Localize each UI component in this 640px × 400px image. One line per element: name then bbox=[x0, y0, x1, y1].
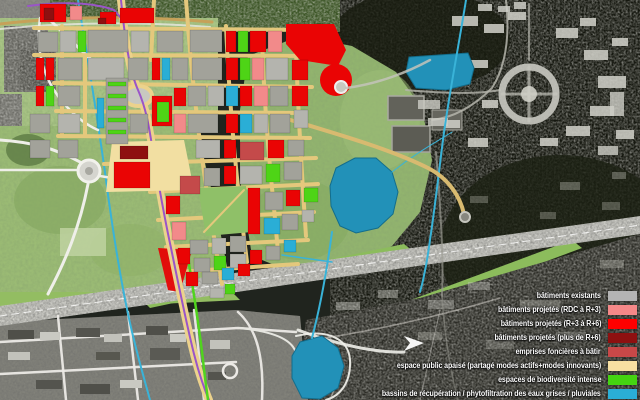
building-block-ex bbox=[270, 114, 290, 133]
building bbox=[482, 100, 498, 108]
building bbox=[612, 38, 628, 46]
building-block-rd bbox=[226, 31, 236, 52]
building-block-cy bbox=[240, 114, 252, 133]
legend-label: bâtiments projetés (RDC à R+3) bbox=[498, 305, 601, 315]
building-block-rd bbox=[114, 162, 150, 188]
building-block-ex bbox=[190, 30, 222, 52]
building-block-ex bbox=[188, 114, 218, 133]
street bbox=[56, 111, 306, 113]
building bbox=[610, 92, 624, 116]
building-block-ex bbox=[190, 240, 208, 254]
building-block-rd bbox=[120, 8, 154, 23]
building-block-rd bbox=[238, 264, 250, 276]
building-block-gr bbox=[108, 94, 126, 98]
building-block-rd bbox=[240, 86, 252, 106]
building-block-rd bbox=[224, 166, 236, 184]
building bbox=[560, 182, 580, 190]
building-block-gr bbox=[78, 31, 86, 52]
roundabout-northeast bbox=[335, 81, 347, 93]
sports-fields bbox=[392, 126, 430, 152]
building bbox=[600, 260, 624, 268]
legend-swatch bbox=[608, 375, 637, 385]
legend-item-5: espace public apaisé (partagé modes acti… bbox=[369, 361, 637, 371]
building-block-cy bbox=[97, 98, 104, 128]
building-block-ex2 bbox=[240, 166, 262, 184]
building-block-ex2 bbox=[302, 210, 314, 222]
building bbox=[612, 172, 626, 179]
building-block-ex2 bbox=[210, 288, 224, 298]
building-block-ex bbox=[202, 272, 218, 284]
building-block-ex bbox=[265, 192, 283, 210]
building bbox=[540, 212, 556, 219]
building-block-sa bbox=[70, 6, 82, 20]
legend-swatch bbox=[608, 319, 637, 329]
building-block-rd bbox=[248, 188, 260, 234]
map-legend: bâtiments existantsbâtiments projetés (R… bbox=[352, 291, 637, 400]
building-block-ex bbox=[88, 30, 128, 52]
building bbox=[8, 352, 30, 360]
roundabout-west-island bbox=[85, 167, 93, 175]
legend-item-6: espaces de biodiversité intense bbox=[484, 375, 637, 385]
legend-item-1: bâtiments projetés (RDC à R+3) bbox=[484, 305, 637, 315]
building-block-ex bbox=[38, 32, 58, 52]
building-block-cy bbox=[162, 58, 170, 80]
building-block-sa bbox=[252, 58, 264, 80]
building bbox=[146, 326, 168, 335]
building-block-rd bbox=[226, 114, 238, 133]
building bbox=[470, 196, 488, 203]
building-block-rd bbox=[166, 196, 180, 214]
building-block-ex2 bbox=[131, 31, 149, 52]
building-block-sa bbox=[174, 114, 186, 133]
building bbox=[80, 384, 110, 394]
building-block-ex2 bbox=[294, 110, 308, 128]
building bbox=[556, 28, 578, 38]
building-block-ex bbox=[58, 86, 80, 106]
building-block-ex bbox=[30, 114, 50, 133]
building-block-rd bbox=[46, 58, 54, 80]
building-block-cy bbox=[264, 218, 280, 234]
building-block-gr bbox=[46, 86, 54, 106]
building-block-ex2 bbox=[212, 238, 226, 254]
building-block-ex2 bbox=[208, 86, 224, 106]
legend-item-0: bâtiments existants bbox=[528, 291, 637, 301]
building-block-ex bbox=[204, 168, 220, 186]
building-block-ex bbox=[192, 58, 222, 80]
building-block-ex bbox=[288, 140, 304, 156]
building bbox=[36, 380, 62, 389]
legend-label: bâtiments projetés (plus de R+6) bbox=[495, 333, 601, 343]
building-block-ex bbox=[30, 140, 50, 158]
building-block-ex bbox=[58, 58, 82, 80]
building bbox=[452, 16, 478, 26]
building-block-cy bbox=[226, 86, 238, 106]
legend-item-3: bâtiments projetés (plus de R+6) bbox=[480, 333, 637, 343]
building-block-gr bbox=[240, 58, 250, 80]
building-block-gr bbox=[238, 31, 248, 52]
building-block-ex bbox=[270, 86, 288, 106]
building-block-ex bbox=[128, 58, 148, 80]
building-block-ex2 bbox=[58, 114, 80, 133]
building bbox=[418, 100, 440, 109]
legend-label: bâtiments existants bbox=[537, 291, 601, 301]
building bbox=[40, 332, 60, 340]
building-block-cy bbox=[222, 268, 234, 280]
building-block-rd bbox=[36, 86, 44, 106]
building-block-rd bbox=[286, 190, 300, 206]
building-block-gr bbox=[108, 118, 126, 122]
building-block-ex bbox=[58, 140, 78, 158]
legend-swatch bbox=[608, 389, 637, 399]
building-block-sa bbox=[268, 31, 282, 52]
legend-item-2: bâtiments projetés (R+3 à R+6) bbox=[487, 319, 637, 329]
building-block-rd bbox=[178, 248, 190, 264]
building-block-gr bbox=[266, 164, 280, 182]
building bbox=[478, 4, 492, 11]
building bbox=[468, 138, 488, 147]
building-block-rd bbox=[250, 31, 266, 52]
building bbox=[8, 330, 34, 339]
building-block-sa bbox=[172, 222, 186, 240]
building-block-ex bbox=[230, 236, 246, 252]
building-block-sa bbox=[254, 86, 268, 106]
legend-swatch bbox=[608, 305, 637, 315]
legend-item-7: bassins de récupération / phytofiltratio… bbox=[352, 389, 637, 399]
building-block-rd bbox=[174, 88, 186, 106]
building-block-gr bbox=[108, 130, 126, 134]
building bbox=[540, 138, 558, 146]
building-block-rd bbox=[224, 140, 236, 158]
lake-northeast bbox=[406, 53, 474, 90]
building bbox=[584, 50, 608, 60]
building-block-gr bbox=[108, 106, 126, 110]
building-block-ex bbox=[157, 31, 183, 52]
building-block-dr bbox=[120, 146, 148, 159]
building-block-rd bbox=[152, 58, 160, 80]
legend-swatch bbox=[608, 333, 637, 343]
building-block-ex2 bbox=[254, 114, 268, 133]
building-block-ex2 bbox=[88, 58, 124, 80]
building-block-ex bbox=[130, 114, 148, 133]
legend-item-4: emprises foncières à bâtir bbox=[504, 347, 637, 357]
building bbox=[602, 202, 620, 210]
building-block-ex bbox=[284, 162, 302, 180]
building bbox=[598, 146, 618, 155]
building bbox=[514, 2, 526, 9]
building-block-rd bbox=[292, 86, 308, 106]
building-block-gr bbox=[108, 82, 126, 86]
building bbox=[566, 126, 590, 136]
building bbox=[170, 334, 186, 342]
building-block-br bbox=[180, 176, 200, 194]
legend-swatch bbox=[608, 291, 637, 301]
building bbox=[150, 348, 180, 360]
building-block-ex2 bbox=[196, 140, 220, 158]
resort-center bbox=[521, 86, 537, 102]
building-block-br bbox=[240, 142, 264, 160]
legend-label: espace public apaisé (partagé modes acti… bbox=[397, 361, 601, 371]
legend-swatch bbox=[608, 347, 637, 357]
legend-label: bâtiments projetés (R+3 à R+6) bbox=[500, 319, 601, 329]
legend-label: emprises foncières à bâtir bbox=[516, 347, 601, 357]
building bbox=[616, 130, 634, 139]
street bbox=[34, 55, 336, 56]
building-block-rd bbox=[36, 58, 44, 80]
building bbox=[468, 282, 490, 290]
building-block-rd bbox=[268, 140, 284, 158]
building-block-rd bbox=[226, 58, 238, 80]
building bbox=[498, 6, 510, 12]
building bbox=[580, 18, 596, 26]
building-block-ex bbox=[172, 58, 188, 80]
building bbox=[76, 328, 100, 337]
street bbox=[58, 136, 310, 138]
building-block-rd bbox=[186, 272, 198, 286]
street bbox=[34, 28, 322, 30]
building-block-gr bbox=[225, 284, 235, 294]
building-block-gr bbox=[157, 102, 169, 122]
building-block-rd bbox=[292, 60, 308, 80]
building-block-rd bbox=[250, 250, 262, 264]
building bbox=[508, 12, 526, 20]
building bbox=[120, 380, 142, 388]
building-block-gr bbox=[304, 188, 318, 202]
masterplan-map-image: bâtiments existantsbâtiments projetés (R… bbox=[0, 0, 640, 400]
building bbox=[484, 24, 504, 33]
building-block-dr bbox=[44, 8, 54, 20]
building-block-ex2 bbox=[266, 58, 288, 80]
building-block-ex bbox=[282, 214, 298, 230]
building-block-ex bbox=[188, 86, 206, 106]
building-block-ex bbox=[194, 258, 210, 272]
building bbox=[96, 352, 120, 360]
building-block-cy bbox=[284, 240, 296, 252]
building bbox=[598, 76, 626, 88]
building-block-ex2 bbox=[60, 31, 76, 52]
building-block-dr bbox=[98, 18, 106, 24]
building bbox=[210, 340, 230, 349]
building bbox=[104, 334, 122, 342]
building-block-ex bbox=[266, 246, 280, 260]
legend-label: espaces de biodiversité intense bbox=[498, 375, 601, 385]
roundabout-east bbox=[460, 212, 470, 222]
legend-label: bassins de récupération / phytofiltratio… bbox=[382, 389, 601, 399]
legend-swatch bbox=[608, 361, 637, 371]
